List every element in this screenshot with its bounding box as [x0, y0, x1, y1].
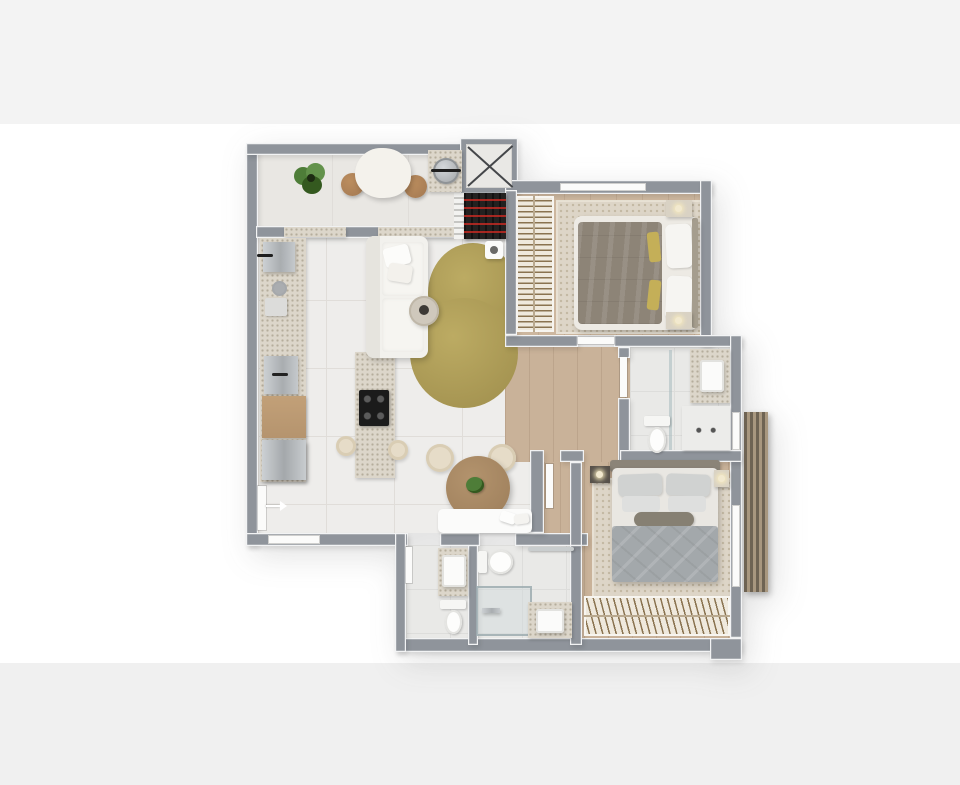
dining-table-plant	[466, 477, 484, 493]
outer-wall-right-main	[730, 335, 742, 638]
dining-right-wall	[530, 450, 544, 533]
bedroom1-bottom-wall-right	[614, 335, 742, 347]
coffee-table-tray	[419, 305, 429, 315]
apartment-floor-plan	[0, 0, 960, 785]
lavatory-left-wall	[395, 533, 406, 652]
bathroom-1-toilet-tank	[644, 416, 670, 426]
outer-wall-right-bedroom1	[700, 180, 712, 347]
kitchen-faucet	[257, 254, 273, 257]
lavatory-toilet-bowl	[445, 610, 462, 634]
elevator-cab-floor	[466, 144, 512, 188]
wardrobe-2-rod	[584, 615, 730, 617]
bathroom-2-toilet-bowl	[488, 550, 513, 574]
bed-1-headboard	[692, 218, 698, 328]
lamp-2-left	[596, 471, 603, 478]
nightstand-2-left	[590, 466, 610, 483]
hallway-floor	[505, 347, 630, 462]
wardrobe-1-rod	[533, 196, 535, 332]
bed-2-pillow-1	[618, 473, 663, 497]
kitchen-round-basin	[272, 281, 287, 296]
living-room-window	[268, 535, 320, 544]
bedroom-2-wardrobe	[584, 596, 730, 636]
bedroom1-bottom-wall-left	[505, 335, 578, 347]
bed-2-duvet	[612, 526, 718, 582]
outer-wall-bottom	[395, 638, 742, 652]
lamp-1-top	[675, 205, 682, 212]
bathroom-1-vanity	[682, 406, 730, 450]
entry-direction-arrow	[266, 505, 280, 507]
refrigerator	[262, 440, 306, 480]
island-stool-left	[336, 436, 356, 456]
double-bed-2	[610, 460, 720, 582]
partition-granite-cap-left	[284, 227, 346, 237]
sofa-pillow-2	[387, 262, 414, 284]
outer-wall-left	[246, 143, 258, 546]
lamp-2-right	[718, 475, 725, 482]
bedroom-1-wardrobe	[516, 196, 554, 332]
island-stool-right	[388, 440, 408, 460]
bedroom2-top-wall-left	[560, 450, 584, 462]
lavatory-sink	[442, 555, 466, 587]
entry-table	[355, 148, 411, 198]
bathroom1-door-leaf	[620, 357, 627, 397]
floor-plan-screenshot	[0, 0, 960, 785]
shower-enclosure	[476, 586, 532, 636]
lamp-1-bottom	[675, 317, 682, 324]
slat-grille	[454, 193, 464, 239]
service-door-leaf	[258, 486, 266, 530]
bathroom1-window	[732, 412, 740, 450]
bed-2-bolster	[634, 512, 694, 527]
bathroom-1-glass-partition	[669, 350, 672, 450]
bathroom-2-toilet-tank	[478, 551, 487, 573]
bedroom1-window	[560, 183, 646, 191]
towel-bar	[528, 547, 574, 551]
bedroom2-window	[732, 505, 740, 587]
kitchen-sink-unit	[263, 242, 295, 272]
laundry-faucet	[431, 169, 461, 172]
shower-fixture	[482, 608, 500, 613]
kitchen-small-appliance	[265, 298, 287, 316]
bedroom2-door-leaf	[546, 464, 553, 508]
bathroom-1-toilet-bowl	[648, 427, 666, 453]
oven-handle	[272, 373, 288, 376]
cooktop	[359, 390, 389, 426]
nightstand-2-right	[714, 470, 729, 487]
bench-pillow-2	[513, 513, 529, 525]
bathroom-2-sink	[536, 609, 564, 633]
bedroom2-left-wall	[570, 462, 582, 546]
facade-louver-panel	[744, 412, 768, 592]
outer-wall-bottom-step	[710, 638, 742, 660]
bed-1-pillow-top	[665, 223, 693, 268]
potted-plant	[294, 163, 328, 195]
bed-2-pillow-4	[668, 496, 706, 512]
lavatory-toilet-tank	[440, 600, 466, 609]
dining-chair-left	[426, 444, 454, 472]
kitchen-wood-cabinet	[262, 396, 306, 438]
bathroom-1-sink	[700, 360, 724, 392]
sofa-backrest	[366, 236, 380, 358]
lavatory-door-leaf	[406, 547, 412, 583]
side-table-item	[490, 246, 498, 254]
entry-direction-arrowhead	[280, 501, 287, 511]
nightstand-1-top	[666, 200, 692, 217]
bed-2-pillow-3	[622, 496, 660, 512]
utility-shelf	[464, 193, 506, 239]
plant-pot-center	[307, 174, 315, 182]
bed-2-pillow-2	[666, 473, 711, 497]
nightstand-1-bottom	[666, 312, 692, 329]
bedroom1-door-leaf	[578, 337, 614, 344]
